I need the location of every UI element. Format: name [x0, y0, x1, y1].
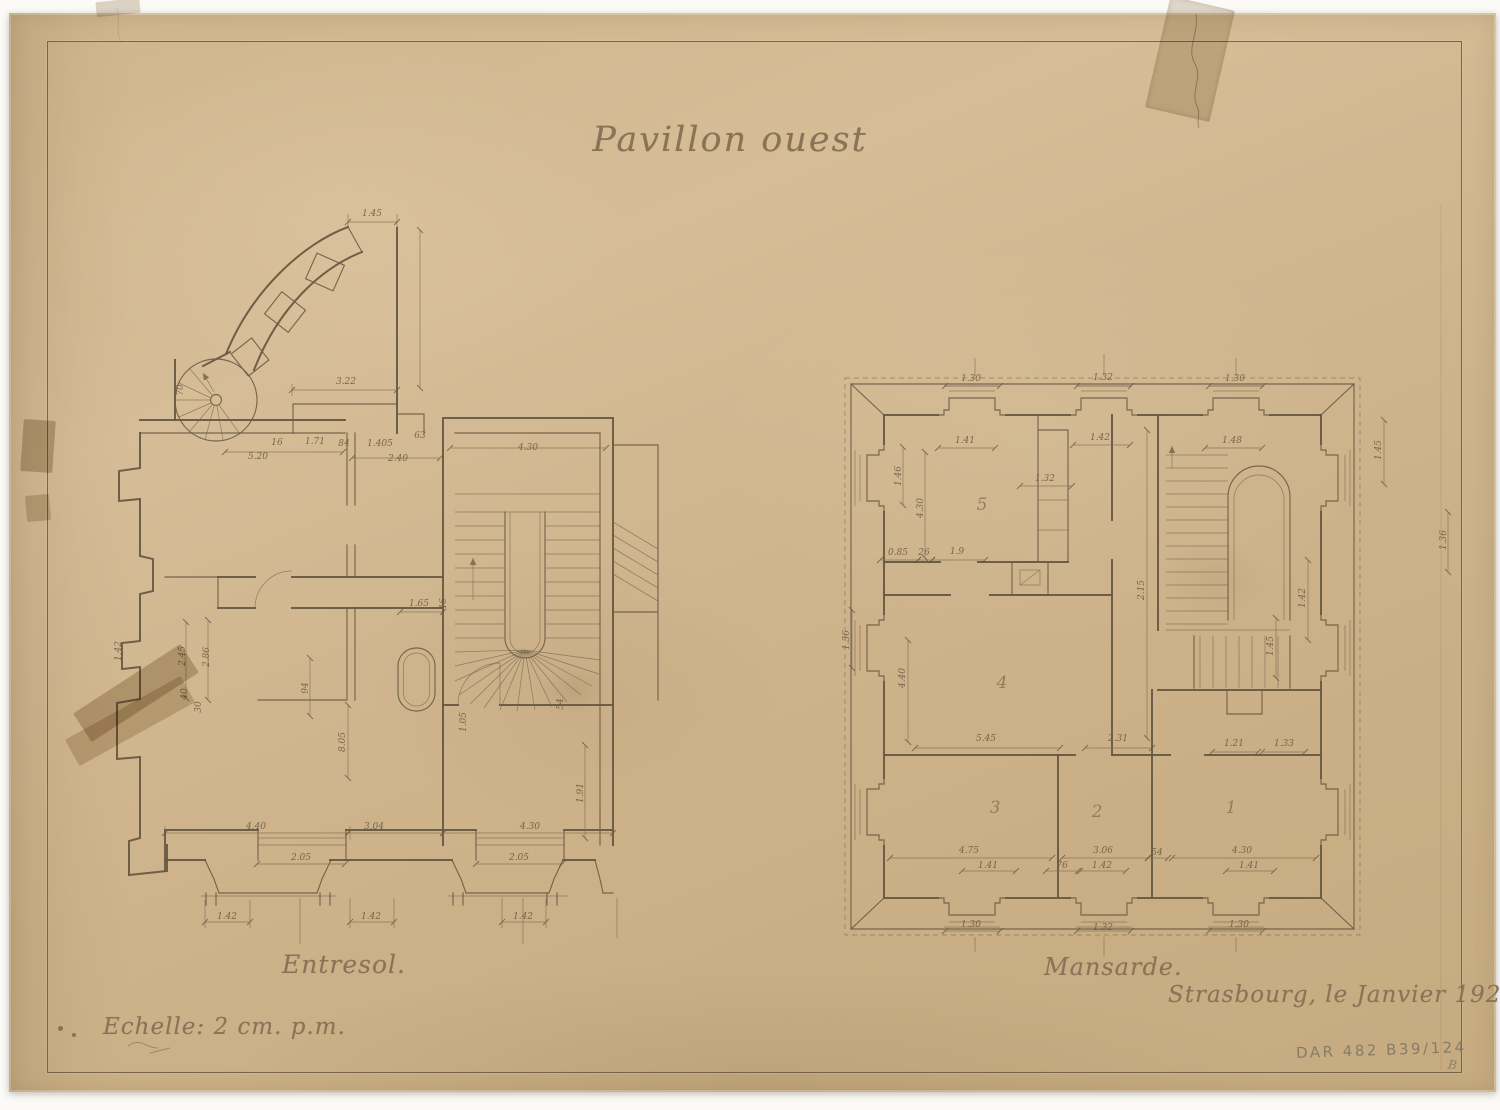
border-frame — [47, 41, 1462, 1073]
drawing-sheet — [9, 13, 1496, 1092]
corner-mark: B — [1447, 1057, 1458, 1072]
drawing-title: Pavillon ouest — [560, 120, 900, 160]
mansarde-caption: Mansarde. — [1044, 953, 1183, 981]
place-date-caption: Strasbourg, le Janvier 1920. — [1168, 982, 1500, 1008]
ink-spot — [58, 1026, 63, 1031]
tape-mark-left-2 — [25, 494, 51, 522]
entresol-caption: Entresol. — [282, 950, 406, 979]
tape-mark-left-1 — [20, 419, 56, 473]
ink-spot — [72, 1033, 76, 1037]
scan-background: 1.453.2263161.71841.4055.202.40702.452.8… — [0, 0, 1500, 1110]
scale-caption: Echelle: 2 cm. p.m. — [103, 1014, 346, 1040]
